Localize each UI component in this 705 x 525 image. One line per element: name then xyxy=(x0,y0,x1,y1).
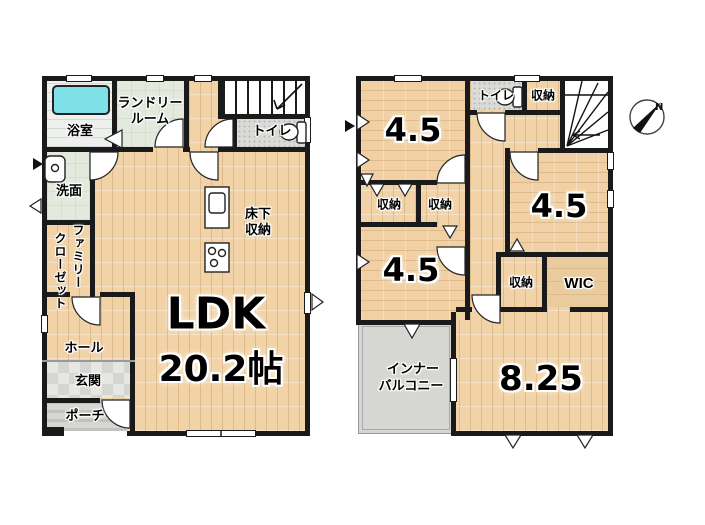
wall-segment xyxy=(538,148,560,153)
window xyxy=(514,75,540,82)
wall-segment xyxy=(467,110,477,115)
wall-segment xyxy=(496,252,613,257)
wall-segment xyxy=(505,153,510,252)
label-ldk-area: 20.2帖 xyxy=(159,340,284,392)
label-hall: ホール xyxy=(64,341,103,355)
wall-segment xyxy=(496,257,501,312)
label-storage-top: 収納 xyxy=(531,89,555,102)
label-underfloor-2: 収納 xyxy=(245,223,271,237)
window xyxy=(146,75,164,82)
compass-icon: N xyxy=(630,100,664,134)
label-room-45-bottom-left: 4.5 xyxy=(383,251,440,289)
label-storage-small: 収納 xyxy=(509,276,533,289)
vent-mark-black xyxy=(345,120,355,132)
wall-segment xyxy=(356,180,437,185)
wall-segment xyxy=(112,76,117,152)
wall-segment xyxy=(560,148,613,153)
wall-segment xyxy=(130,297,135,436)
vent-mark xyxy=(577,435,593,448)
window xyxy=(194,75,212,82)
label-entrance: 玄関 xyxy=(75,374,101,388)
vent-mark xyxy=(312,294,323,310)
label-toilet-1f: トイレ xyxy=(252,124,291,138)
label-laundry-1: ランドリー xyxy=(117,96,182,110)
label-underfloor-1: 床下 xyxy=(245,207,271,221)
label-porch: ポーチ xyxy=(65,409,104,423)
bathtub-icon xyxy=(52,85,110,115)
wall-segment xyxy=(42,427,64,436)
window xyxy=(607,152,614,170)
label-family-closet-2: クローゼット xyxy=(52,232,69,318)
vent-mark xyxy=(30,199,41,213)
label-toilet-2f: トイレ xyxy=(478,89,514,102)
window xyxy=(304,117,311,143)
label-laundry-2: ルーム xyxy=(131,112,170,126)
entrance-step-line xyxy=(42,360,135,362)
wall-segment xyxy=(184,76,189,152)
label-room-45-top-left: 4.5 xyxy=(385,111,442,149)
label-balcony-1: インナー xyxy=(387,362,439,376)
wall-segment xyxy=(218,147,310,152)
stairs-floor1 xyxy=(223,81,305,114)
label-wic: WIC xyxy=(564,276,593,293)
wall-segment xyxy=(356,320,456,325)
label-storage-mid-left: 収納 xyxy=(377,198,401,211)
label-bath: 浴室 xyxy=(67,124,93,138)
wall-segment xyxy=(451,431,613,436)
floorplan-canvas: N 浴室 ランドリー ルーム トイレ 洗面 ファミリー クローゼット 床下 収納… xyxy=(0,0,705,525)
wall-segment xyxy=(218,76,223,119)
window xyxy=(394,75,422,82)
wall-segment xyxy=(42,147,153,152)
label-washroom: 洗面 xyxy=(56,184,82,198)
window-sliding xyxy=(186,430,256,437)
stairs-floor2 xyxy=(565,81,608,148)
label-room-45-right: 4.5 xyxy=(531,187,588,225)
wall-segment xyxy=(505,110,565,115)
window xyxy=(41,315,48,333)
label-ldk: LDK xyxy=(167,289,266,340)
wall-segment xyxy=(42,398,100,403)
wall-segment xyxy=(456,307,472,312)
wall-segment xyxy=(451,402,456,436)
label-storage-mid-right: 収納 xyxy=(428,198,452,211)
wall-segment xyxy=(356,222,437,227)
label-room-825: 8.25 xyxy=(499,359,583,399)
vent-mark xyxy=(505,435,521,448)
window-balcony-door xyxy=(450,358,457,402)
window xyxy=(607,190,614,208)
wall-segment xyxy=(90,147,95,154)
wall-segment xyxy=(90,180,95,297)
wall-segment xyxy=(500,307,545,312)
window xyxy=(66,75,92,82)
wall-segment xyxy=(570,307,613,312)
label-balcony-2: バルコニー xyxy=(379,379,444,393)
wall-segment xyxy=(416,185,421,222)
wall-segment xyxy=(183,147,190,152)
window xyxy=(304,292,311,314)
wall-segment xyxy=(542,257,547,312)
wall-segment xyxy=(356,76,361,325)
compass-north-label: N xyxy=(655,102,663,113)
wall-segment xyxy=(451,312,456,360)
label-family-closet-1: ファミリー xyxy=(70,224,87,302)
wall-segment xyxy=(42,76,47,436)
